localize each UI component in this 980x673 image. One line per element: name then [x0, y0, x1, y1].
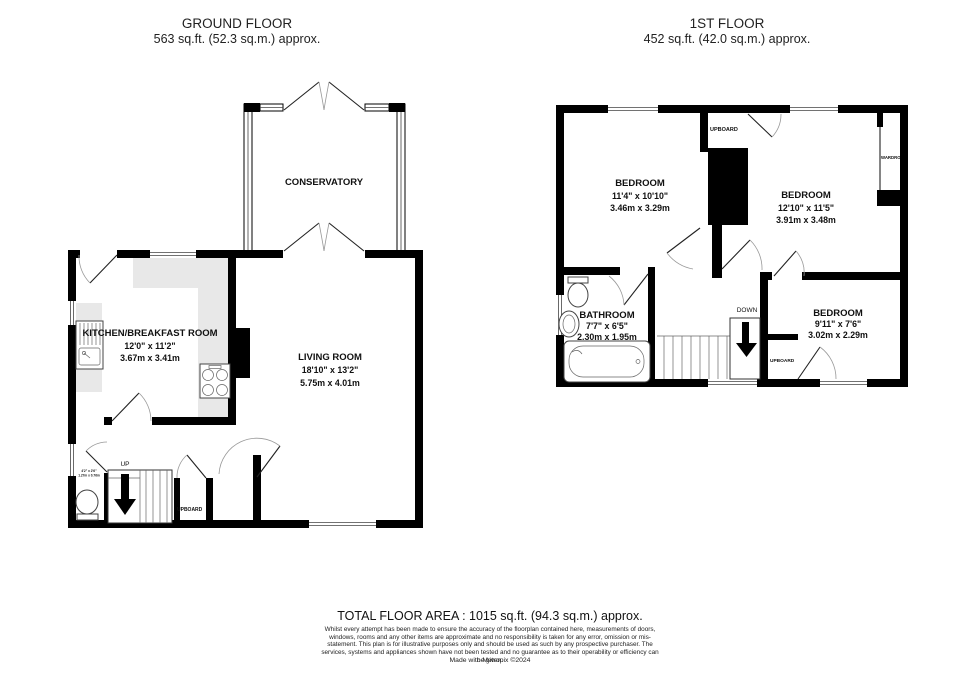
bedroom3-dim-metric: 3.02m x 2.29m — [808, 330, 868, 340]
stairs-down — [657, 318, 760, 379]
bedroom3-dim-imperial: 9'11" x 7'6" — [815, 319, 861, 329]
bathroom-dim-imperial: 7'7" x 6'5" — [586, 321, 628, 331]
total-floor-area: TOTAL FLOOR AREA : 1015 sq.ft. (94.3 sq.… — [0, 609, 980, 623]
conservatory-label: CONSERVATORY — [285, 177, 364, 188]
kitchen-dim-imperial: 12'0" x 11'2" — [124, 341, 175, 351]
stairs-down-label: DOWN — [737, 307, 758, 314]
credit-text: Made with Metropix ©2024 — [0, 657, 980, 664]
bedroom1-label: BEDROOM — [615, 178, 665, 189]
bathroom-dim-metric: 2.30m x 1.95m — [577, 332, 637, 342]
bathroom-label: BATHROOM — [579, 310, 634, 321]
bedroom2-dim-imperial: 12'10" x 11'5" — [778, 203, 834, 213]
first-openings — [620, 267, 802, 280]
stairs-up — [108, 470, 172, 523]
stairs-up-label: UP — [120, 461, 129, 468]
kitchen-dim-metric: 3.67m x 3.41m — [120, 353, 180, 363]
ground-cupboard-label: UPBOARD — [177, 507, 203, 513]
wc-dim-metric: 1.27m x 0.76m — [78, 474, 100, 478]
floorplan-drawing: CONSERVATORY KITCHEN/BREAKFAST ROOM 12'0… — [0, 0, 980, 673]
first-cupboard-top-label: UPBOARD — [710, 127, 738, 133]
floorplan-page: GROUND FLOOR 563 sq.ft. (52.3 sq.m.) app… — [0, 0, 980, 673]
ground-floor-plan: CONSERVATORY KITCHEN/BREAKFAST ROOM 12'0… — [68, 82, 423, 528]
wc-toilet — [76, 490, 98, 520]
bedroom2-label: BEDROOM — [781, 190, 831, 201]
bathroom-basin — [559, 311, 579, 337]
living-room-label: LIVING ROOM — [298, 352, 362, 363]
bedroom1-dim-metric: 3.46m x 3.29m — [610, 203, 670, 213]
bedroom1-dim-imperial: 11'4" x 10'10" — [612, 191, 668, 201]
wc-dim-imperial: 4'2" x 2'6" — [81, 469, 97, 473]
bathroom-toilet — [568, 277, 588, 307]
living-room-dim-imperial: 18'10" x 13'2" — [302, 365, 359, 375]
kitchen-label: KITCHEN/BREAKFAST ROOM — [82, 328, 217, 339]
first-floor-plan: WARDROBE — [556, 105, 908, 387]
bathtub — [564, 341, 650, 382]
living-room-dim-metric: 5.75m x 4.01m — [300, 378, 360, 388]
first-cupboard-bottom-label: UPBOARD — [770, 358, 795, 364]
kitchen-hob — [200, 364, 230, 398]
bedroom2-dim-metric: 3.91m x 3.48m — [776, 215, 836, 225]
bedroom3-label: BEDROOM — [813, 308, 863, 319]
